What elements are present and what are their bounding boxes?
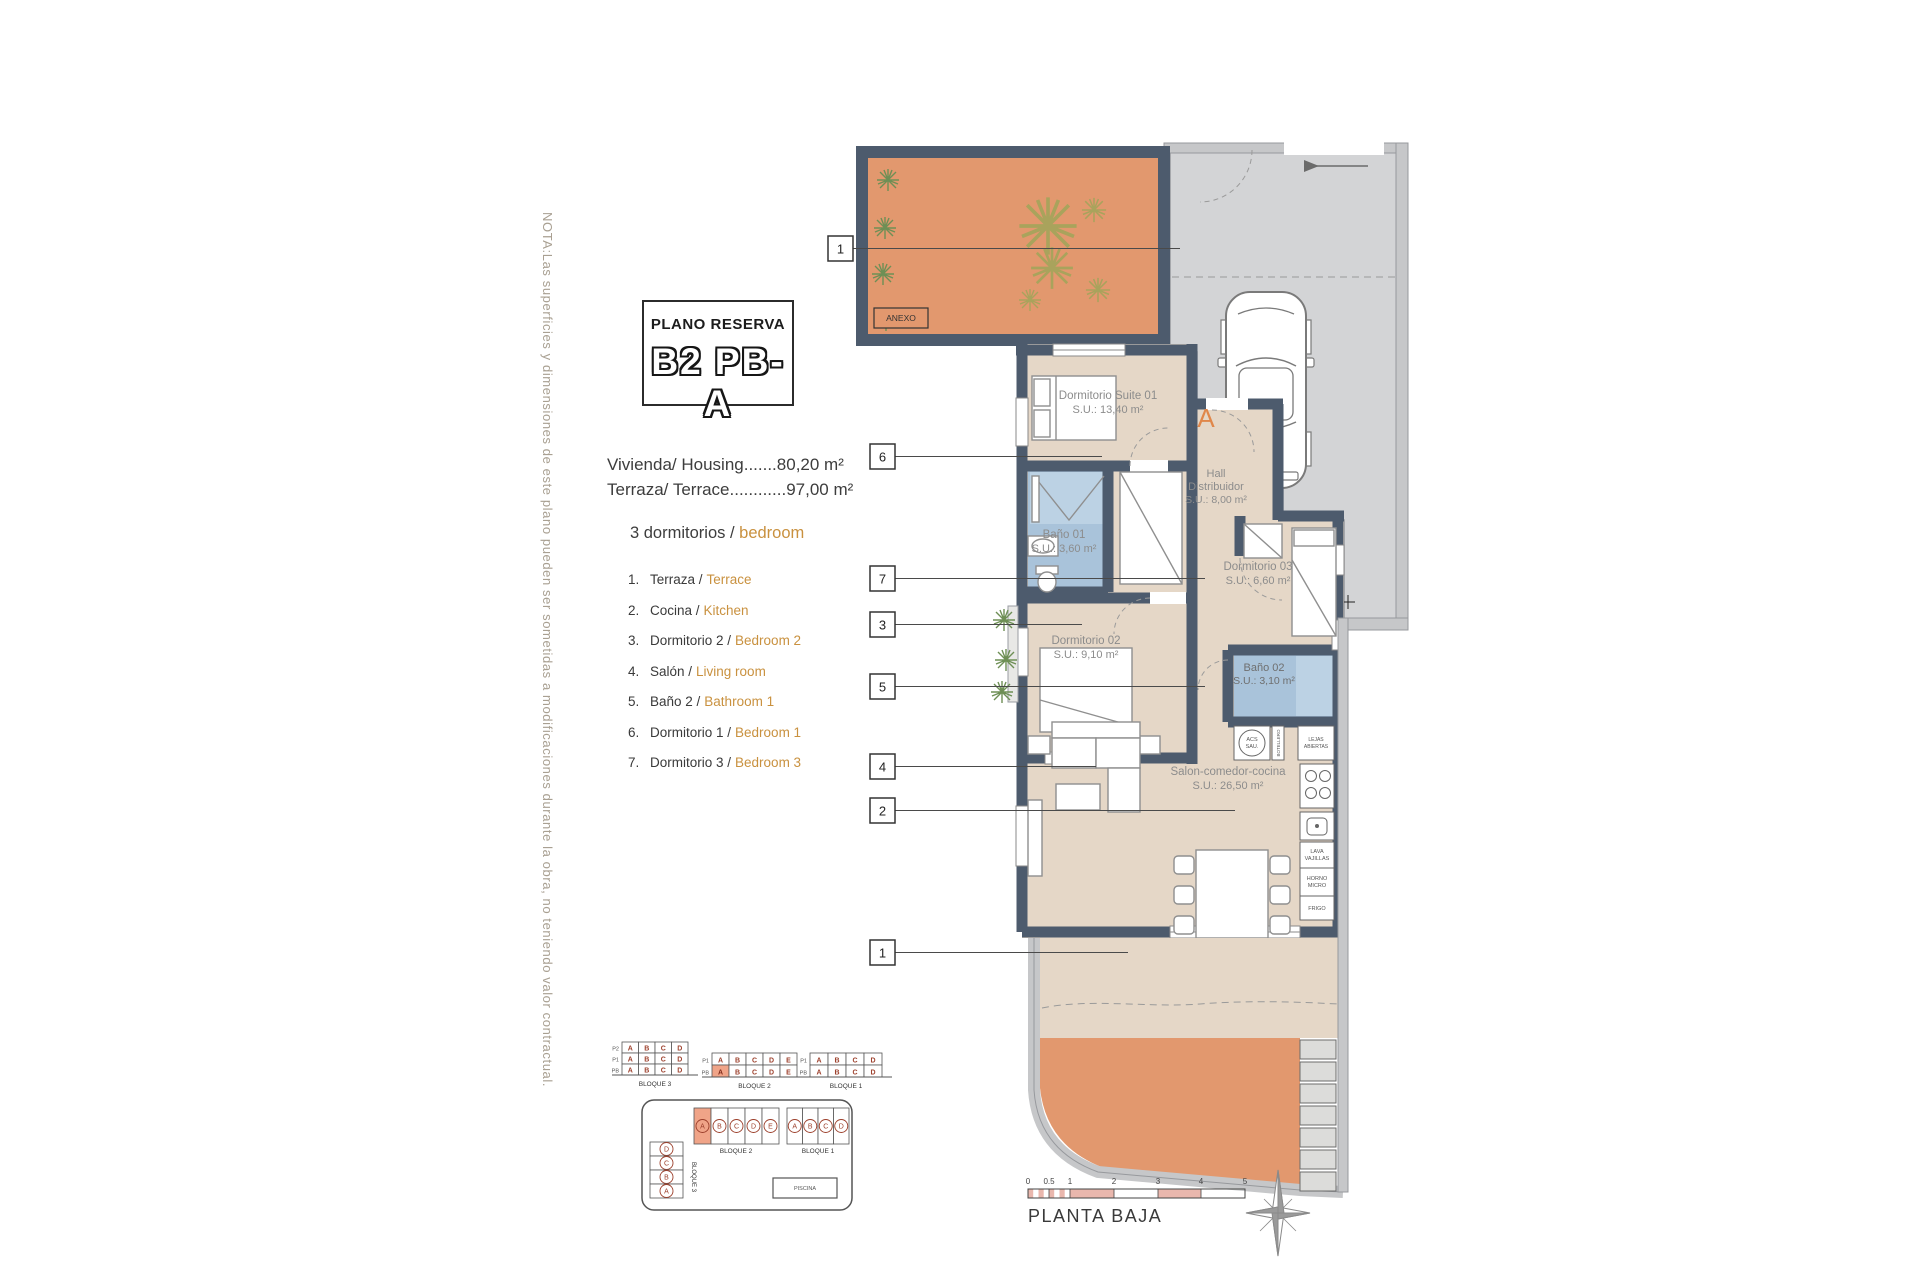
site-unit-letter: C — [664, 1161, 669, 1168]
entry-letter: A — [1197, 403, 1215, 433]
site-unit-letter: B — [717, 1124, 722, 1131]
bedrooms-en: bedroom — [739, 524, 804, 542]
callout-number: 7 — [879, 572, 886, 587]
key-cell-letter: C — [661, 1046, 666, 1053]
key-cell-letter: D — [677, 1068, 682, 1075]
key-row-label: P1 — [612, 1058, 619, 1064]
svg-text:MICRO: MICRO — [1308, 883, 1327, 889]
site-unit-letter: D — [751, 1124, 756, 1131]
key-row-label: PB — [702, 1071, 710, 1077]
dining-table — [1196, 850, 1268, 938]
key-cell-letter: B — [834, 1058, 839, 1065]
title-box: PLANO RESERVA B2 PB-A — [642, 300, 794, 406]
site-unit-letter: B — [808, 1124, 813, 1131]
key-cell-letter: B — [735, 1070, 740, 1077]
site-unit-letter: C — [734, 1124, 739, 1131]
key-caption: BLOQUE 1 — [830, 1083, 863, 1090]
key-cell-letter: D — [769, 1070, 774, 1077]
key-row-label: PB — [612, 1069, 620, 1075]
site-unit-letter: D — [664, 1147, 669, 1154]
svg-text:0: 0 — [1026, 1177, 1031, 1186]
callout-number: 2 — [879, 804, 886, 819]
svg-text:3: 3 — [1156, 1177, 1161, 1186]
svg-text:Dormitorio 03: Dormitorio 03 — [1223, 561, 1292, 573]
area-summary: Vivienda/ Housing.......80,20 m² Terraza… — [607, 452, 853, 502]
plan-drawing: ANEXO — [0, 0, 1920, 1280]
key-cell-letter: B — [834, 1070, 839, 1077]
site-bloque3-caption: BLOQUE 3 — [690, 1162, 696, 1193]
site-unit-letter: E — [768, 1124, 773, 1131]
svg-text:Distribuidor: Distribuidor — [1188, 481, 1244, 493]
site-unit-letter: A — [700, 1124, 705, 1131]
svg-text:LEJAS: LEJAS — [1308, 737, 1324, 743]
floor-title: PLANTA BAJA — [1028, 1206, 1162, 1226]
legend-item: 6.Dormitorio 1 /Bedroom 1 — [628, 725, 801, 756]
callout-number: 1 — [879, 946, 886, 961]
key-cell-letter: A — [628, 1068, 633, 1075]
key-row-label: P2 — [612, 1047, 619, 1053]
svg-text:ACS: ACS — [1246, 737, 1258, 743]
svg-text:S.U.: 26,50 m²: S.U.: 26,50 m² — [1193, 780, 1264, 792]
svg-text:Baño 01: Baño 01 — [1043, 529, 1086, 541]
key-cell-letter: B — [644, 1057, 649, 1064]
site-unit-letter: C — [823, 1124, 828, 1131]
site-bloque1-caption: BLOQUE 1 — [802, 1148, 835, 1155]
key-cell-letter: A — [718, 1070, 723, 1077]
louver-steps — [1300, 1040, 1336, 1191]
plan-code: B2 PB-A — [644, 341, 792, 425]
key-grid-bloque1: P1ABCDPBABCDBLOQUE 1 — [800, 1053, 892, 1090]
key-row-label: P1 — [800, 1059, 807, 1065]
svg-text:5: 5 — [1243, 1177, 1248, 1186]
room-legend: 1.Terraza /Terrace 2.Cocina /Kitchen 3.D… — [628, 572, 801, 786]
svg-text:ABIERTAS: ABIERTAS — [1304, 744, 1329, 750]
key-cell-letter: D — [769, 1058, 774, 1065]
svg-text:1: 1 — [1068, 1177, 1073, 1186]
key-cell-letter: E — [786, 1058, 791, 1065]
svg-text:4: 4 — [1199, 1177, 1204, 1186]
callout-number: 5 — [879, 680, 886, 695]
margin-disclaimer-note: NOTA:Las superficies y dimensiones de es… — [540, 212, 555, 1112]
key-cell-letter: D — [870, 1070, 875, 1077]
key-cell-letter: C — [852, 1070, 857, 1077]
site-plan: ABCDE ABCD DCBA BLOQUE 2 BLOQUE 1 BLOQUE… — [642, 1100, 852, 1210]
plan-kicker: PLANO RESERVA — [644, 316, 792, 333]
legend-item: 5.Baño 2 /Bathroom 1 — [628, 694, 801, 725]
key-cell-letter: B — [644, 1068, 649, 1075]
pool-label: PISCINA — [794, 1186, 816, 1192]
key-grid-bloque3: P2ABCDP1ABCDPBABCDBLOQUE 3 — [612, 1042, 698, 1088]
callout-number: 6 — [879, 450, 886, 465]
svg-text:SAU.: SAU. — [1246, 744, 1259, 750]
callout-number: 4 — [879, 760, 886, 775]
key-row-label: PB — [800, 1071, 808, 1077]
key-cell-letter: A — [816, 1070, 821, 1077]
key-cell-letter: C — [752, 1070, 757, 1077]
sofa — [1052, 722, 1140, 738]
site-unit-letter: A — [792, 1124, 797, 1131]
site-bloque2-caption: BLOQUE 2 — [720, 1148, 753, 1155]
svg-text:VAJILLAS: VAJILLAS — [1305, 856, 1330, 862]
key-cell-letter: A — [628, 1046, 633, 1053]
callout-number: 3 — [879, 618, 886, 633]
key-caption: BLOQUE 2 — [738, 1083, 771, 1090]
bedrooms-line: 3 dormitorios / bedroom — [630, 524, 804, 543]
legend-item: 4.Salón /Living room — [628, 664, 801, 695]
legend-item: 1.Terraza /Terrace — [628, 572, 801, 603]
site-unit-letter: D — [839, 1124, 844, 1131]
legend-item: 2.Cocina /Kitchen — [628, 603, 801, 634]
svg-text:LAVA: LAVA — [1310, 849, 1324, 855]
svg-text:S.U.: 9,10 m²: S.U.: 9,10 m² — [1054, 649, 1119, 661]
terrace-area-line: Terraza/ Terrace............97,00 m² — [607, 477, 853, 502]
site-unit-letter: A — [664, 1189, 669, 1196]
key-grid-bloque2: P1ABCDEPBABCDEBLOQUE 2 — [702, 1053, 807, 1090]
svg-text:Hall: Hall — [1207, 468, 1226, 480]
housing-area-line: Vivienda/ Housing.......80,20 m² — [607, 452, 853, 477]
key-cell-letter: E — [786, 1070, 791, 1077]
terrace-tag-label: ANEXO — [886, 313, 916, 323]
bedrooms-es: 3 dormitorios / — [630, 524, 735, 542]
key-cell-letter: A — [816, 1058, 821, 1065]
svg-text:S.U.: 3,10 m²: S.U.: 3,10 m² — [1233, 675, 1295, 687]
svg-text:Dormitorio 02: Dormitorio 02 — [1051, 635, 1120, 647]
svg-text:0.5: 0.5 — [1043, 1177, 1055, 1186]
svg-text:BOTELLERO: BOTELLERO — [1276, 729, 1281, 757]
key-cell-letter: B — [735, 1058, 740, 1065]
key-cell-letter: A — [718, 1058, 723, 1065]
top-terrace: ANEXO — [856, 146, 1170, 346]
svg-text:Baño 02: Baño 02 — [1244, 662, 1285, 674]
svg-text:S.U.: 8,00 m²: S.U.: 8,00 m² — [1185, 494, 1247, 506]
key-cell-letter: D — [677, 1057, 682, 1064]
key-cell-letter: D — [677, 1046, 682, 1053]
legend-item: 7.Dormitorio 3 /Bedroom 3 — [628, 755, 801, 786]
key-cell-letter: A — [628, 1057, 633, 1064]
key-cell-letter: D — [870, 1058, 875, 1065]
callout-number: 1 — [837, 242, 844, 257]
key-row-label: P1 — [702, 1059, 709, 1065]
key-cell-letter: C — [661, 1068, 666, 1075]
svg-text:HORNO: HORNO — [1307, 876, 1328, 882]
planter — [991, 606, 1018, 703]
key-cell-letter: C — [752, 1058, 757, 1065]
svg-text:S.U.: 13,40 m²: S.U.: 13,40 m² — [1073, 404, 1144, 416]
legend-item: 3.Dormitorio 2 /Bedroom 2 — [628, 633, 801, 664]
svg-text:Salon-comedor-cocina: Salon-comedor-cocina — [1170, 766, 1286, 778]
site-unit-letter: B — [664, 1175, 669, 1182]
svg-text:FRIGO: FRIGO — [1308, 906, 1326, 912]
key-cell-letter: C — [852, 1058, 857, 1065]
svg-text:2: 2 — [1112, 1177, 1117, 1186]
key-caption: BLOQUE 3 — [639, 1081, 672, 1088]
svg-text:S.U.: 3,60 m²: S.U.: 3,60 m² — [1032, 543, 1097, 555]
svg-text:S.U.: 6,60 m²: S.U.: 6,60 m² — [1226, 575, 1291, 587]
room-label: Dormitorio Suite 01 — [1059, 390, 1157, 402]
key-cell-letter: B — [644, 1046, 649, 1053]
key-cell-letter: C — [661, 1057, 666, 1064]
floorplan-sheet: ANEXO — [0, 0, 1920, 1280]
driveway-entrance-gap — [1284, 141, 1384, 155]
